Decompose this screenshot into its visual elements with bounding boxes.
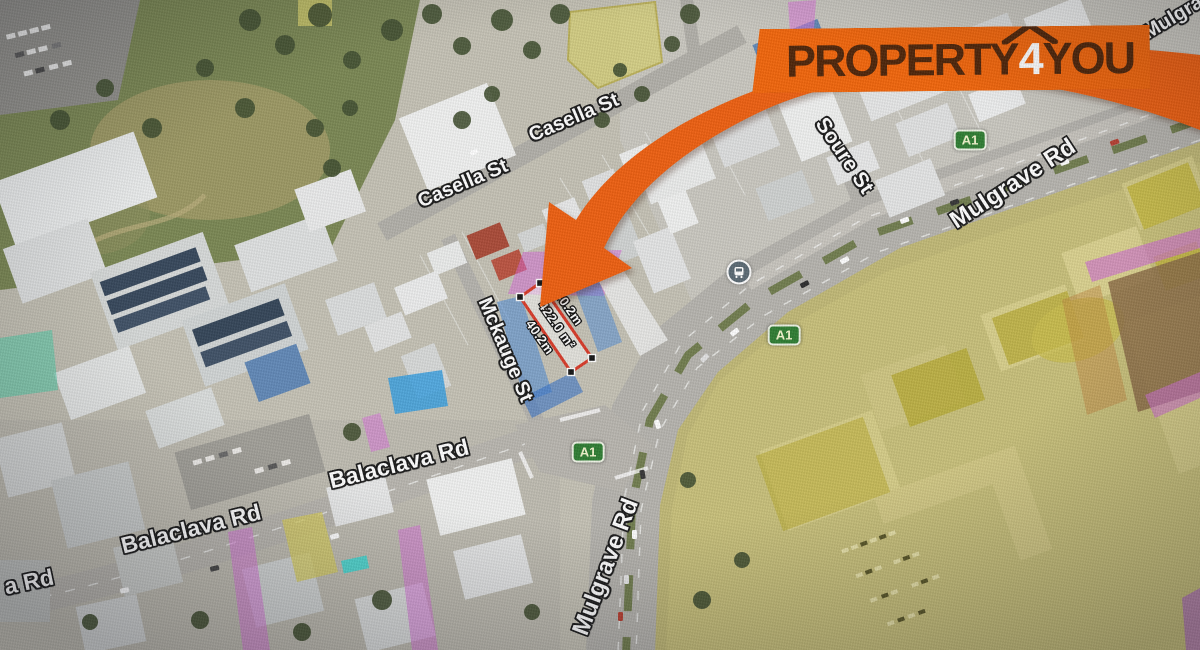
property4you-logo: PROPERTY 4 YOU xyxy=(786,35,1135,84)
satellite-imagery xyxy=(0,0,1200,650)
property4you-logo-banner: PROPERTY 4 YOU xyxy=(752,25,1151,93)
logo-text-property: PROPERTY xyxy=(786,36,1018,83)
logo-text-four: 4 xyxy=(1018,36,1042,81)
map-canvas[interactable]: Casella StCasella StSoure StMulgrave RdM… xyxy=(0,0,1200,650)
bus-stop-icon[interactable] xyxy=(727,260,752,285)
